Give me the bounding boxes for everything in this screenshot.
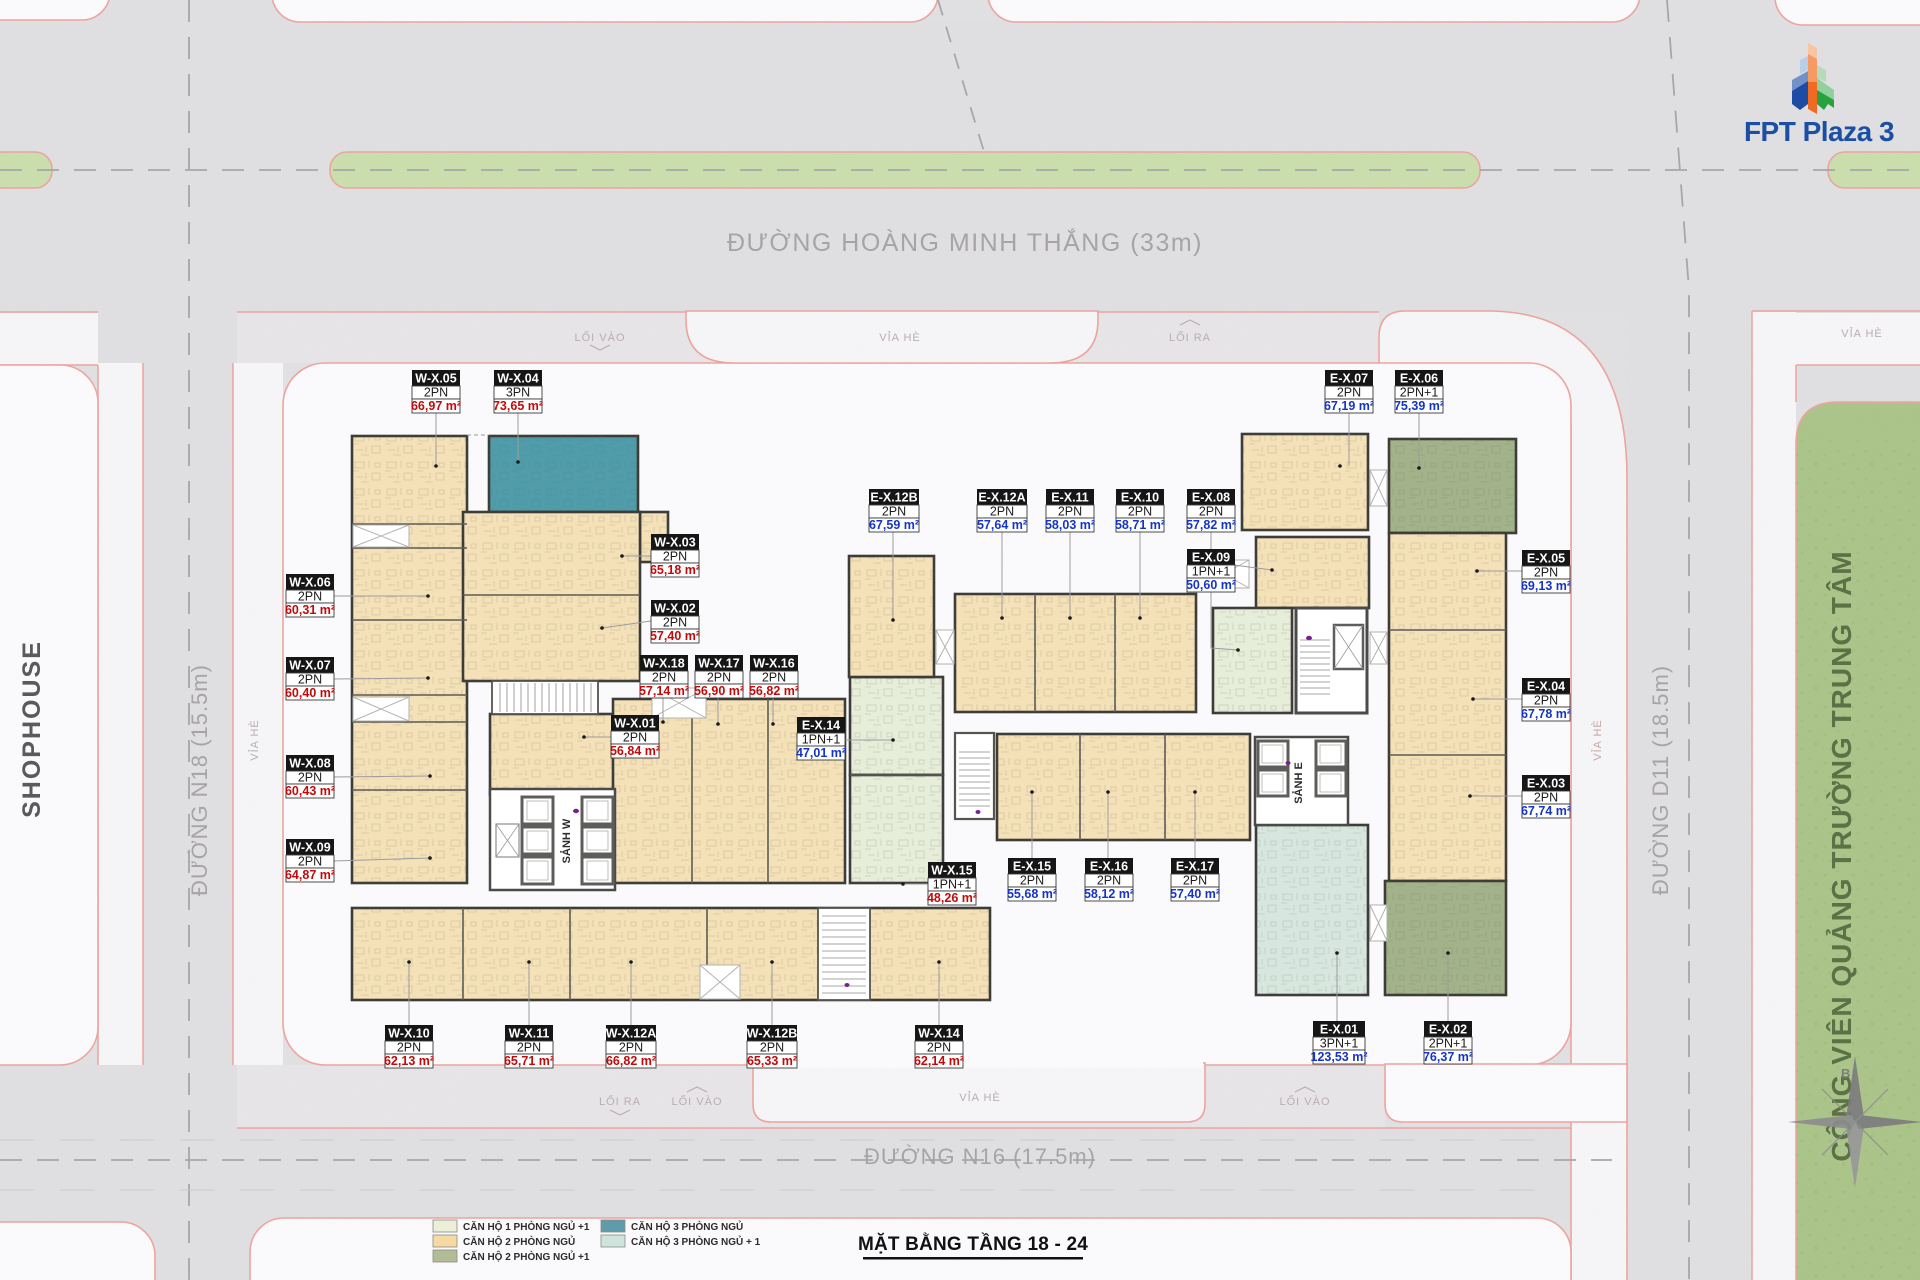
svg-text:56,84 m²: 56,84 m² (610, 744, 660, 758)
svg-text:W-X.16: W-X.16 (753, 657, 794, 671)
svg-text:2PN: 2PN (707, 671, 731, 685)
svg-text:2PN: 2PN (424, 386, 448, 400)
svg-text:W-X.08: W-X.08 (289, 757, 330, 771)
svg-text:76,37 m²: 76,37 m² (1423, 1050, 1473, 1064)
svg-text:CĂN HỘ 3 PHÒNG NGỦ + 1: CĂN HỘ 3 PHÒNG NGỦ + 1 (631, 1235, 761, 1248)
svg-text:E-X.02: E-X.02 (1429, 1023, 1467, 1037)
svg-text:E-X.16: E-X.16 (1090, 860, 1128, 874)
svg-text:57,64 m²: 57,64 m² (977, 518, 1027, 532)
svg-text:2PN: 2PN (298, 771, 322, 785)
svg-text:2PN: 2PN (517, 1041, 541, 1055)
svg-text:67,78 m²: 67,78 m² (1521, 707, 1571, 721)
svg-text:2PN: 2PN (1337, 386, 1361, 400)
svg-text:73,65 m²: 73,65 m² (493, 399, 543, 413)
svg-text:60,40 m²: 60,40 m² (285, 686, 335, 700)
svg-text:69,13 m²: 69,13 m² (1521, 579, 1571, 593)
svg-text:67,59 m²: 67,59 m² (869, 518, 919, 532)
svg-text:2PN: 2PN (298, 673, 322, 687)
svg-text:W-X.09: W-X.09 (289, 841, 330, 855)
svg-text:2PN: 2PN (990, 505, 1014, 519)
svg-text:W-X.05: W-X.05 (415, 372, 456, 386)
svg-text:57,40 m²: 57,40 m² (650, 629, 700, 643)
svg-text:E-X.05: E-X.05 (1527, 552, 1565, 566)
svg-text:1PN+1: 1PN+1 (802, 733, 841, 747)
svg-text:E-X.04: E-X.04 (1527, 680, 1565, 694)
svg-text:2PN: 2PN (619, 1041, 643, 1055)
svg-text:W-X.07: W-X.07 (289, 659, 330, 673)
svg-text:2PN: 2PN (760, 1041, 784, 1055)
svg-text:58,03 m²: 58,03 m² (1045, 518, 1095, 532)
svg-text:2PN: 2PN (623, 731, 647, 745)
svg-text:62,13 m²: 62,13 m² (384, 1054, 434, 1068)
svg-text:2PN: 2PN (1199, 505, 1223, 519)
svg-text:W-X.17: W-X.17 (698, 657, 739, 671)
svg-text:66,82 m²: 66,82 m² (606, 1054, 656, 1068)
svg-text:65,33 m²: 65,33 m² (747, 1054, 797, 1068)
svg-text:E-X.03: E-X.03 (1527, 777, 1565, 791)
svg-text:SẢNH W: SẢNH W (560, 818, 573, 863)
svg-text:MẶT BẰNG TẦNG 18 - 24: MẶT BẰNG TẦNG 18 - 24 (858, 1233, 1088, 1255)
svg-text:3PN: 3PN (506, 386, 530, 400)
svg-text:1PN+1: 1PN+1 (933, 878, 972, 892)
svg-text:2PN: 2PN (1534, 791, 1558, 805)
svg-text:W-X.06: W-X.06 (289, 576, 330, 590)
svg-text:2PN: 2PN (927, 1041, 951, 1055)
svg-text:W-X.11: W-X.11 (509, 1027, 550, 1041)
svg-text:2PN: 2PN (1128, 505, 1152, 519)
svg-text:64,87 m²: 64,87 m² (285, 868, 335, 882)
svg-text:W-X.12A: W-X.12A (606, 1027, 656, 1041)
svg-text:2PN: 2PN (1183, 874, 1207, 888)
svg-text:E-X.06: E-X.06 (1400, 372, 1438, 386)
svg-text:66,97 m²: 66,97 m² (411, 399, 461, 413)
svg-text:E-X.10: E-X.10 (1121, 491, 1159, 505)
svg-text:E-X.11: E-X.11 (1051, 491, 1089, 505)
svg-text:SẢNH E: SẢNH E (1292, 762, 1305, 804)
svg-text:E-X.17: E-X.17 (1176, 860, 1214, 874)
svg-text:2PN: 2PN (663, 616, 687, 630)
svg-text:58,71 m²: 58,71 m² (1115, 518, 1165, 532)
svg-text:67,19 m²: 67,19 m² (1324, 399, 1374, 413)
svg-text:2PN: 2PN (1020, 874, 1044, 888)
svg-text:W-X.10: W-X.10 (388, 1027, 429, 1041)
svg-text:55,68 m²: 55,68 m² (1007, 887, 1057, 901)
svg-text:56,82 m²: 56,82 m² (749, 684, 799, 698)
svg-text:W-X.14: W-X.14 (918, 1027, 959, 1041)
svg-text:57,40 m²: 57,40 m² (1170, 887, 1220, 901)
svg-text:2PN: 2PN (663, 550, 687, 564)
svg-text:57,82 m²: 57,82 m² (1186, 518, 1236, 532)
svg-text:2PN: 2PN (882, 505, 906, 519)
svg-text:E-X.09: E-X.09 (1192, 551, 1230, 565)
svg-text:E-X.14: E-X.14 (802, 719, 840, 733)
svg-text:E-X.08: E-X.08 (1192, 491, 1230, 505)
svg-text:FPT Plaza 3: FPT Plaza 3 (1744, 116, 1894, 147)
svg-text:2PN: 2PN (762, 671, 786, 685)
svg-text:75,39 m²: 75,39 m² (1394, 399, 1444, 413)
svg-text:CĂN HỘ 2 PHÒNG NGỦ +1: CĂN HỘ 2 PHÒNG NGỦ +1 (463, 1250, 590, 1263)
svg-text:B: B (1841, 1066, 1850, 1081)
svg-text:60,43 m²: 60,43 m² (285, 784, 335, 798)
svg-text:E-X.15: E-X.15 (1013, 860, 1051, 874)
svg-text:65,71 m²: 65,71 m² (504, 1054, 554, 1068)
svg-text:W-X.12B: W-X.12B (747, 1027, 797, 1041)
svg-text:57,14 m²: 57,14 m² (639, 684, 689, 698)
svg-text:47,01 m²: 47,01 m² (796, 746, 846, 760)
svg-text:E-X.12B: E-X.12B (870, 491, 917, 505)
svg-text:CĂN HỘ 2 PHÒNG NGỦ: CĂN HỘ 2 PHÒNG NGỦ (463, 1235, 575, 1248)
svg-text:2PN: 2PN (298, 590, 322, 604)
svg-text:2PN: 2PN (298, 855, 322, 869)
svg-text:W-X.03: W-X.03 (654, 536, 695, 550)
svg-text:3PN+1: 3PN+1 (1320, 1037, 1359, 1051)
svg-text:2PN: 2PN (397, 1041, 421, 1055)
svg-text:E-X.12A: E-X.12A (978, 491, 1025, 505)
svg-text:50,60 m²: 50,60 m² (1186, 578, 1236, 592)
svg-text:E-X.07: E-X.07 (1330, 372, 1368, 386)
svg-text:2PN+1: 2PN+1 (1429, 1037, 1468, 1051)
svg-text:W-X.18: W-X.18 (643, 657, 684, 671)
svg-text:67,74 m²: 67,74 m² (1521, 804, 1571, 818)
svg-text:2PN: 2PN (1058, 505, 1082, 519)
svg-text:2PN: 2PN (652, 671, 676, 685)
svg-text:123,53 m²: 123,53 m² (1311, 1050, 1368, 1064)
svg-text:2PN: 2PN (1534, 694, 1558, 708)
svg-text:E-X.01: E-X.01 (1320, 1023, 1358, 1037)
svg-text:2PN: 2PN (1534, 566, 1558, 580)
svg-text:W-X.02: W-X.02 (654, 602, 695, 616)
svg-text:58,12 m²: 58,12 m² (1084, 887, 1134, 901)
svg-text:1PN+1: 1PN+1 (1192, 565, 1231, 579)
svg-text:2PN+1: 2PN+1 (1400, 386, 1439, 400)
svg-text:62,14 m²: 62,14 m² (914, 1054, 964, 1068)
svg-text:W-X.04: W-X.04 (497, 372, 538, 386)
svg-text:56,90 m²: 56,90 m² (694, 684, 744, 698)
svg-text:CĂN HỘ 3 PHÒNG NGỦ: CĂN HỘ 3 PHÒNG NGỦ (631, 1220, 743, 1233)
svg-text:CĂN HỘ 1 PHÒNG NGỦ +1: CĂN HỘ 1 PHÒNG NGỦ +1 (463, 1220, 590, 1233)
svg-text:2PN: 2PN (1097, 874, 1121, 888)
svg-text:65,18 m²: 65,18 m² (650, 563, 700, 577)
svg-text:W-X.15: W-X.15 (931, 864, 972, 878)
svg-text:48,26 m²: 48,26 m² (927, 891, 977, 905)
svg-text:60,31 m²: 60,31 m² (285, 603, 335, 617)
svg-text:W-X.01: W-X.01 (614, 717, 655, 731)
